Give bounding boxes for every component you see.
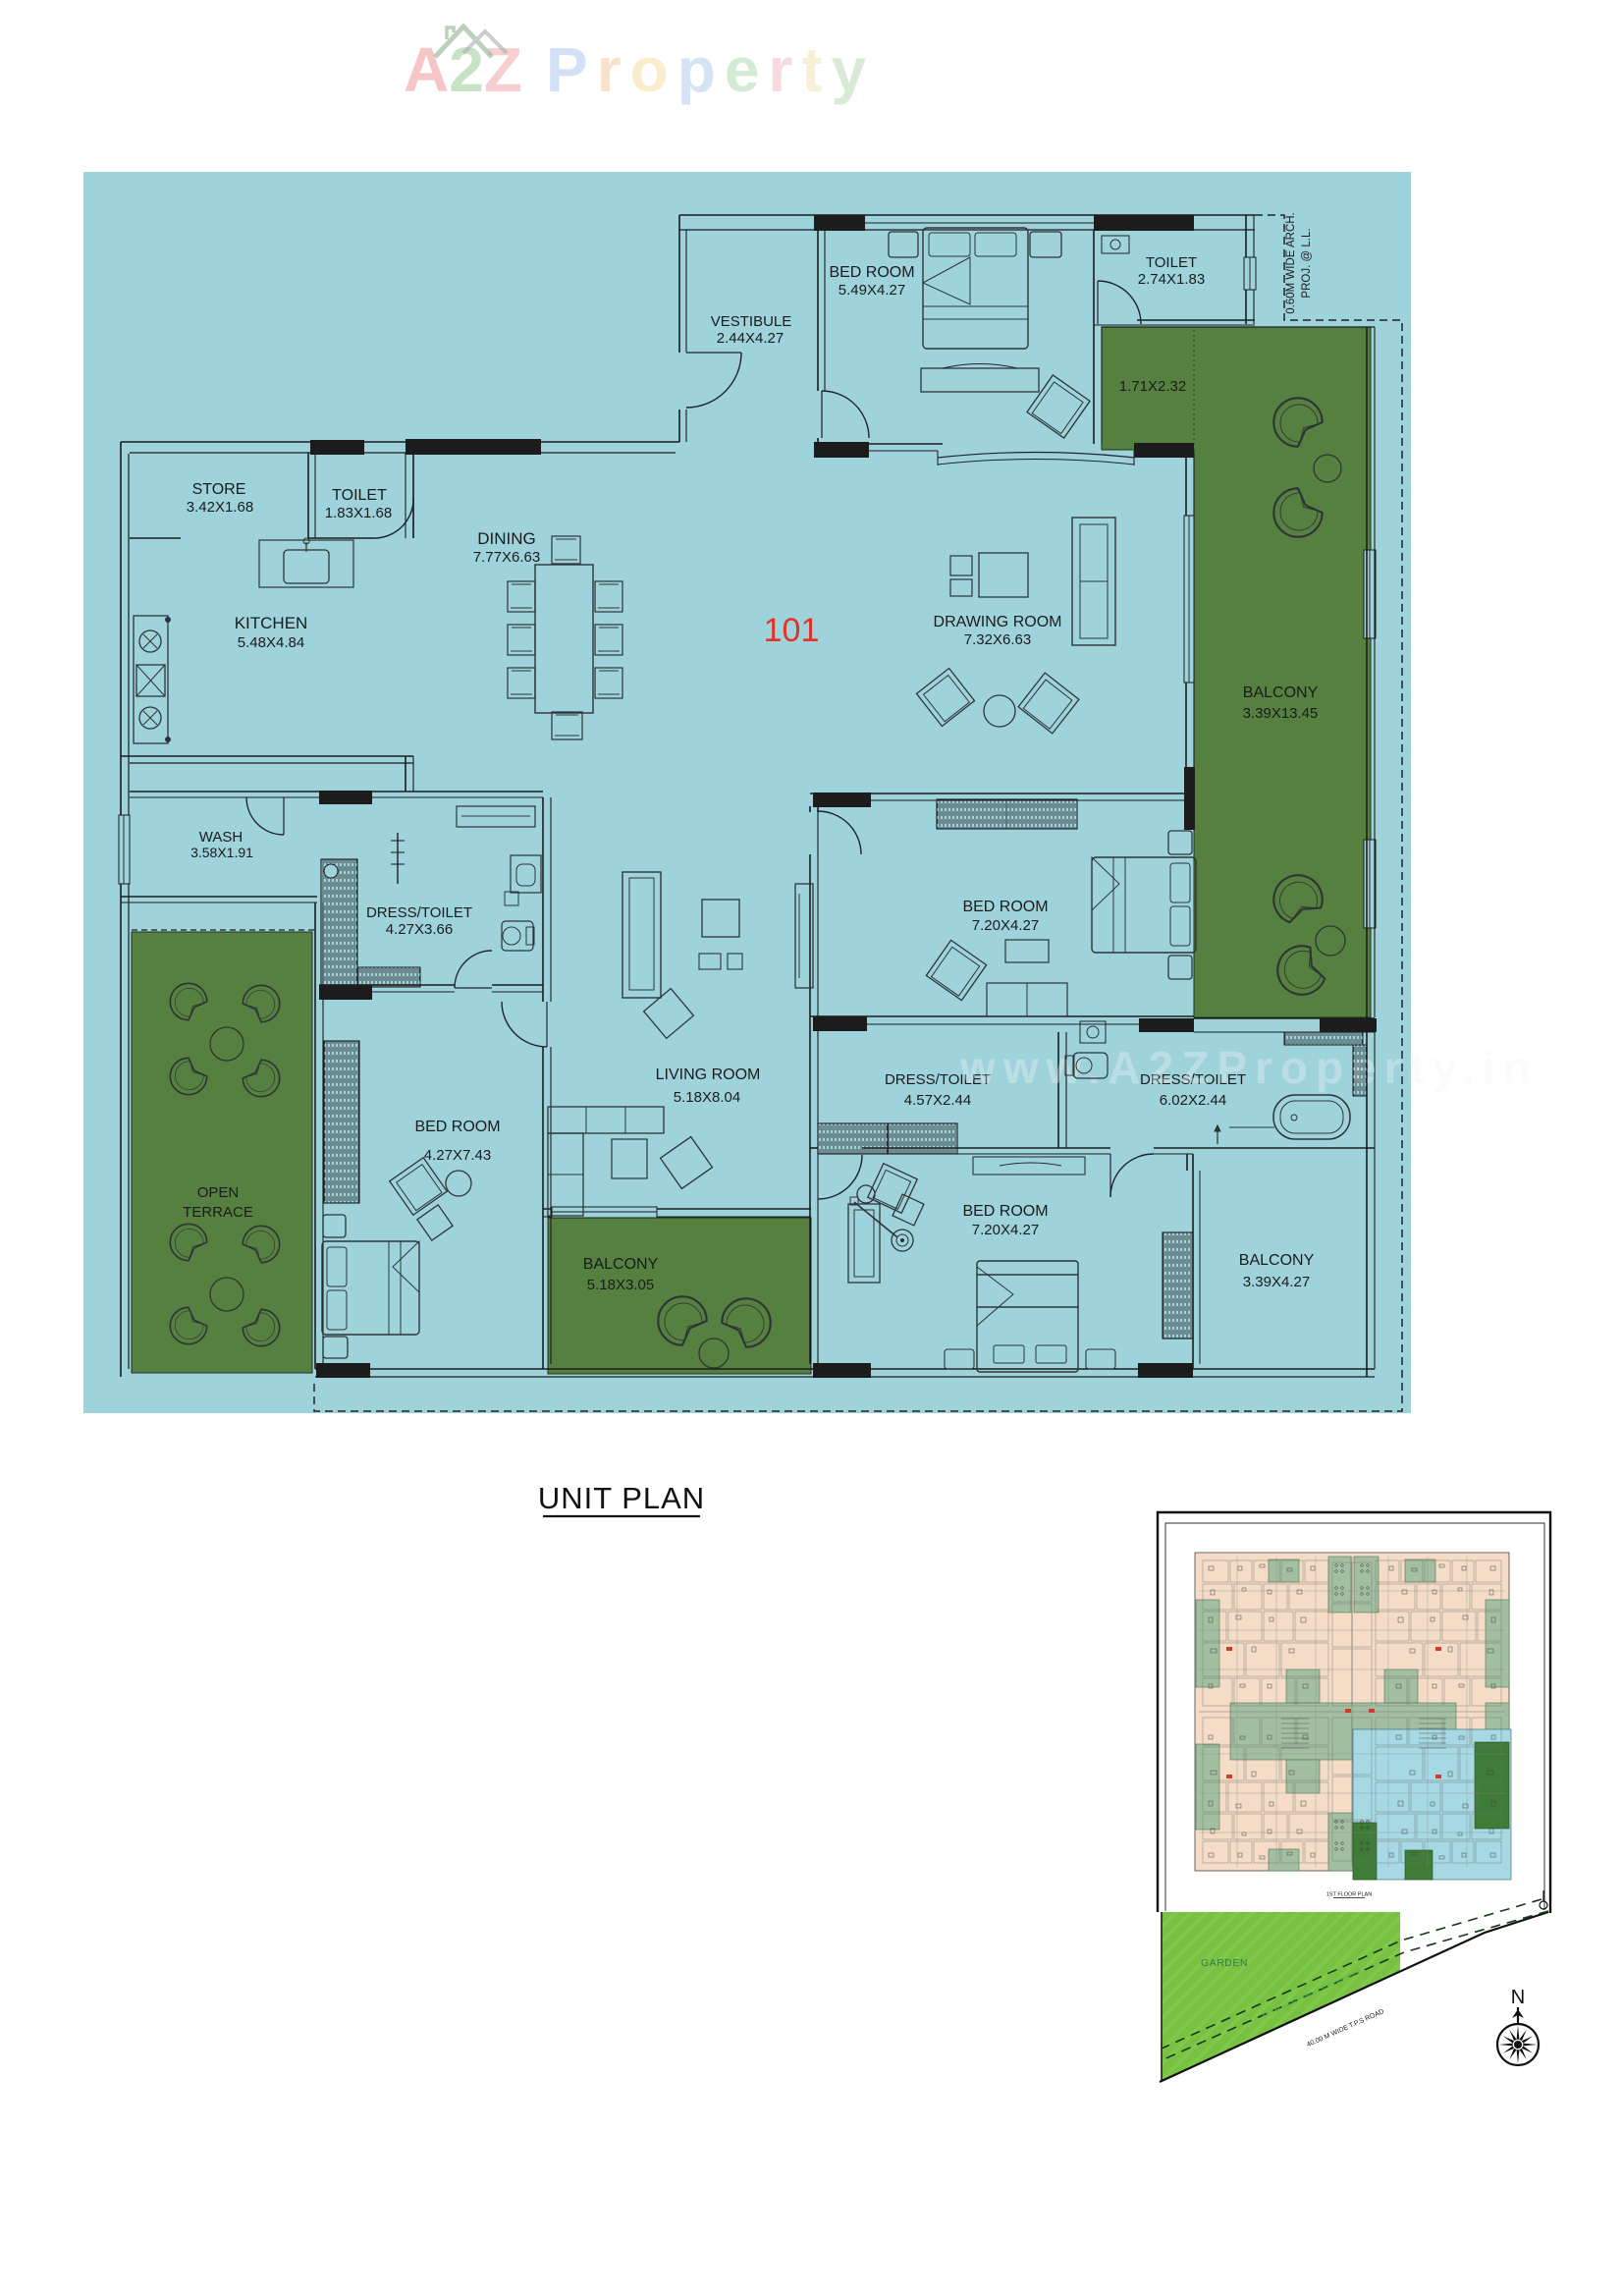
svg-text:BED ROOM: BED ROOM: [829, 264, 914, 281]
svg-text:KITCHEN: KITCHEN: [235, 614, 308, 632]
svg-text:Property: Property: [546, 34, 875, 105]
svg-text:1.71X2.32: 1.71X2.32: [1119, 378, 1186, 395]
svg-text:3.58X1.91: 3.58X1.91: [190, 845, 253, 860]
svg-text:UNIT PLAN: UNIT PLAN: [538, 1481, 705, 1515]
svg-text:N: N: [1511, 1987, 1525, 2008]
svg-text:BALCONY: BALCONY: [1239, 1252, 1315, 1269]
svg-text:5.49X4.27: 5.49X4.27: [839, 282, 905, 299]
svg-text:BALCONY: BALCONY: [1243, 684, 1319, 701]
svg-text:BED ROOM: BED ROOM: [962, 1203, 1048, 1220]
svg-text:1ST FLOOR PLAN: 1ST FLOOR PLAN: [1326, 1892, 1372, 1898]
svg-text:7.20X4.27: 7.20X4.27: [972, 1222, 1039, 1238]
svg-text:BED ROOM: BED ROOM: [414, 1119, 500, 1135]
svg-text:5.48X4.84: 5.48X4.84: [238, 634, 304, 651]
svg-text:DRESS/TOILET: DRESS/TOILET: [366, 904, 472, 921]
svg-text:BALCONY: BALCONY: [583, 1256, 659, 1273]
svg-text:OPEN: OPEN: [197, 1184, 240, 1201]
svg-text:BED ROOM: BED ROOM: [962, 899, 1048, 915]
svg-text:0.60M WIDE ARCH.: 0.60M WIDE ARCH.: [1285, 212, 1297, 314]
svg-text:GARDEN: GARDEN: [1201, 1957, 1248, 1969]
svg-text:3.39X13.45: 3.39X13.45: [1243, 705, 1319, 722]
svg-text:PROJ. @ L.L.: PROJ. @ L.L.: [1301, 228, 1313, 298]
svg-text:5.18X3.05: 5.18X3.05: [587, 1277, 654, 1293]
svg-text:7.20X4.27: 7.20X4.27: [972, 917, 1039, 934]
svg-text:STORE: STORE: [192, 481, 246, 498]
svg-text:DRAWING ROOM: DRAWING ROOM: [934, 614, 1062, 630]
svg-text:7.77X6.63: 7.77X6.63: [473, 549, 540, 566]
svg-text:6.02X2.44: 6.02X2.44: [1160, 1092, 1226, 1109]
svg-text:2.44X4.27: 2.44X4.27: [717, 330, 784, 347]
svg-text:TERRACE: TERRACE: [183, 1204, 253, 1221]
svg-text:4.27X7.43: 4.27X7.43: [424, 1147, 491, 1164]
svg-text:3.42X1.68: 3.42X1.68: [187, 499, 253, 516]
svg-text:TOILET: TOILET: [332, 487, 387, 504]
svg-text:1.83X1.68: 1.83X1.68: [325, 505, 392, 521]
svg-text:WASH: WASH: [199, 829, 243, 846]
svg-text:4.27X3.66: 4.27X3.66: [386, 921, 453, 938]
svg-text:2.74X1.83: 2.74X1.83: [1138, 271, 1205, 288]
svg-text:101: 101: [764, 612, 820, 649]
svg-text:TOILET: TOILET: [1146, 254, 1197, 271]
svg-text:7.32X6.63: 7.32X6.63: [964, 631, 1031, 648]
svg-text:LIVING ROOM: LIVING ROOM: [656, 1066, 761, 1083]
svg-text:4.57X2.44: 4.57X2.44: [904, 1092, 971, 1109]
svg-text:A2Z: A2Z: [404, 34, 522, 105]
svg-text:VESTIBULE: VESTIBULE: [711, 313, 792, 330]
svg-text:3.39X4.27: 3.39X4.27: [1243, 1274, 1310, 1290]
svg-text:5.18X8.04: 5.18X8.04: [674, 1089, 740, 1106]
svg-text:DINING: DINING: [477, 529, 536, 548]
svg-text:www.A2ZProperty.in: www.A2ZProperty.in: [959, 1042, 1539, 1093]
